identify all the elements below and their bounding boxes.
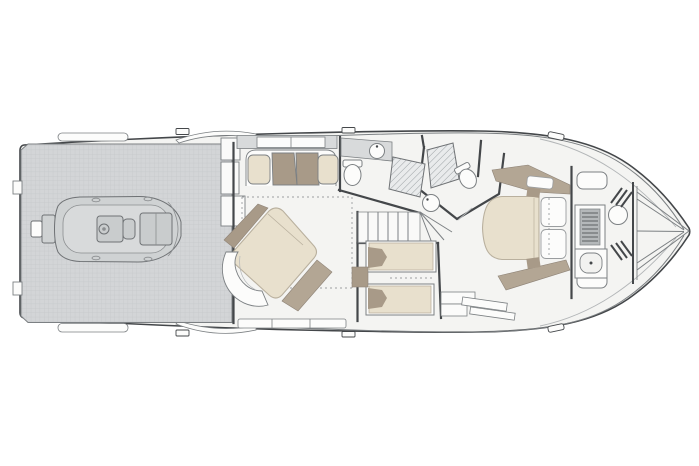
pillow-bottom: [541, 230, 566, 259]
nightstand: [352, 267, 368, 287]
outboard-engine: [31, 221, 42, 237]
sink: [423, 195, 440, 212]
pillow-top: [541, 198, 566, 227]
sofa-armrest-right: [318, 155, 338, 184]
sofa-cushion-2: [296, 153, 319, 185]
corner-cushion-bottom: [526, 257, 540, 269]
tender-seat: [123, 219, 135, 239]
sofa-cushion-1: [272, 153, 297, 185]
sofa-armrest-left: [248, 155, 270, 184]
toilet: [343, 160, 362, 186]
island-bed: [483, 197, 540, 260]
faucet-dot: [426, 198, 428, 200]
round-hatch: [609, 206, 628, 225]
sink-console: [575, 249, 607, 278]
corner-cushion-top: [526, 187, 540, 198]
floor-plan-canvas: [0, 0, 699, 466]
swim-platform: [13, 138, 245, 323]
seat-top: [577, 172, 607, 189]
ladder-unit: [575, 205, 605, 249]
berth-lower: [366, 284, 434, 315]
berth-upper: [366, 241, 436, 272]
faucet-dot: [376, 145, 378, 147]
master-sofa: [246, 150, 338, 186]
engine-bracket: [42, 215, 55, 243]
overhead-hatch: [526, 176, 553, 190]
yacht-floor-plan: [0, 0, 699, 466]
tender-console: [97, 216, 123, 242]
